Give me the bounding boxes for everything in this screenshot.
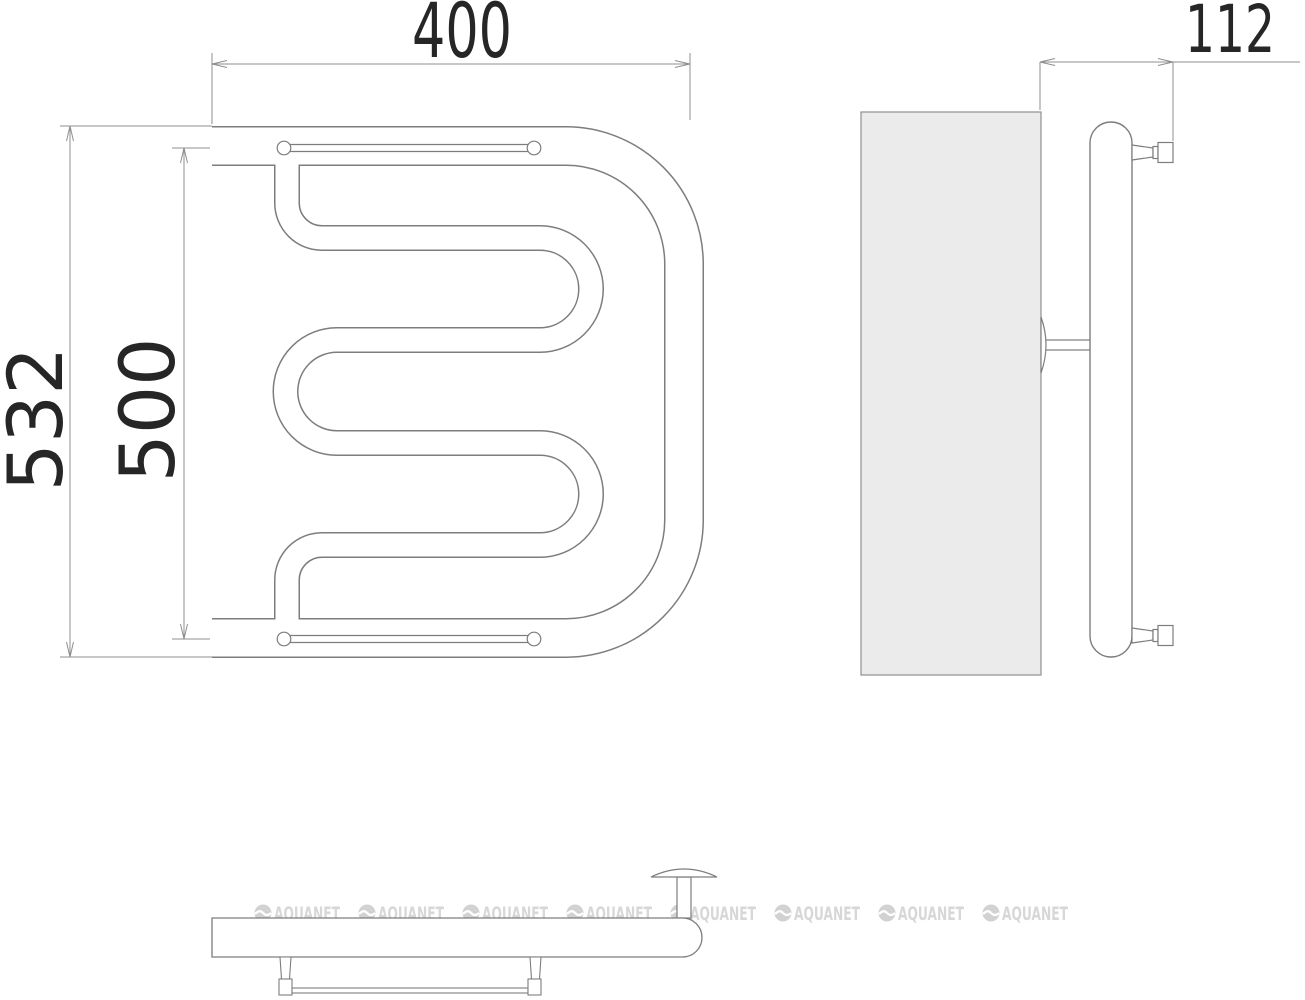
- side-view: [861, 112, 1173, 675]
- dimension-value-532: 532: [0, 347, 80, 492]
- wall-bracket-stem: [1045, 340, 1092, 350]
- bracket-stem-top: [677, 877, 691, 918]
- serpentine-coil-outline: [286, 146, 592, 638]
- front-view: [212, 141, 684, 646]
- bottom-view: [212, 869, 717, 995]
- watermark: AQUANET: [983, 903, 1069, 925]
- rod-bar-top-view: [292, 988, 528, 993]
- rail-top-profile: [212, 918, 702, 957]
- watermark: AQUANET: [879, 903, 965, 925]
- watermark-text: AQUANET: [1002, 903, 1068, 925]
- serpentine-coil-fill: [286, 146, 592, 638]
- dimension-side-depth: 112: [1040, 0, 1300, 141]
- wall-panel: [861, 112, 1041, 675]
- rod-leg-left: [279, 957, 292, 995]
- watermark-text: AQUANET: [794, 903, 860, 925]
- wall-bracket-plate: [1041, 317, 1046, 373]
- rod-end-cap: [277, 632, 291, 646]
- dimension-value-400: 400: [412, 0, 512, 75]
- top-fitting: [1132, 143, 1173, 163]
- rod-end-cap: [527, 141, 541, 155]
- watermark-text: AQUANET: [898, 903, 964, 925]
- bracket-cap: [651, 869, 717, 877]
- rod-leg-right: [528, 957, 541, 995]
- bottom-fitting: [1132, 626, 1173, 646]
- watermark: AQUANET: [775, 903, 861, 925]
- rod-end-cap: [277, 141, 291, 155]
- towel-rail-technical-drawing: AQUANET AQUANET AQUANET AQUANET AQUANET …: [0, 0, 1305, 1000]
- tube-profile: [1090, 122, 1132, 657]
- dimension-front-width: 400: [212, 0, 690, 124]
- watermark-text: AQUANET: [690, 903, 756, 925]
- dimension-axis-height: 500: [103, 148, 210, 639]
- dimension-value-500: 500: [103, 338, 192, 483]
- rod-end-cap: [527, 632, 541, 646]
- dimension-value-112: 112: [1185, 0, 1275, 68]
